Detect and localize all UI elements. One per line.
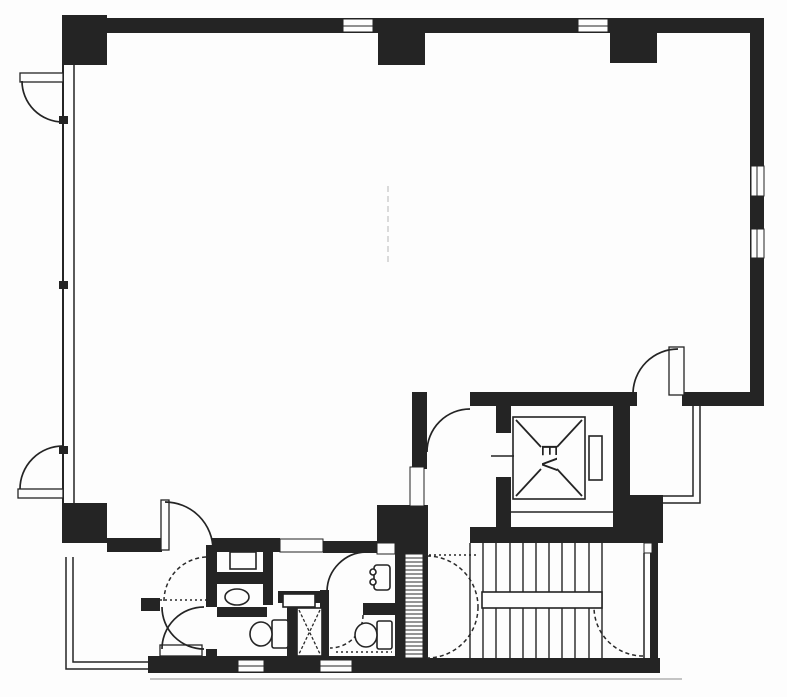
toilet-tank: [377, 621, 392, 649]
balcony-glass-wall: [66, 557, 148, 669]
hand-basin-faucet: [370, 579, 376, 585]
right-window: [751, 229, 764, 258]
duct-space-hatched: [405, 553, 423, 658]
hand-basin-faucet: [370, 569, 376, 575]
hand-basin: [374, 565, 390, 590]
elevator-label: EV: [537, 444, 561, 472]
bottom-vent-window: [320, 660, 352, 672]
wash-basin: [225, 589, 249, 605]
stair-door-frame-notch: [644, 543, 652, 553]
toilet-bowl: [250, 622, 272, 646]
hall-door-left: [427, 409, 470, 452]
outer-walls: [100, 18, 764, 673]
elevator-counterweight: [589, 436, 602, 480]
door-leaf: [669, 347, 684, 395]
partition-glass-panel: [410, 467, 424, 506]
entrance-door-lower-left: [18, 446, 63, 498]
door-leaf: [20, 73, 63, 82]
floor-plan-page: EV: [0, 0, 787, 697]
wc-lobby-double-swing-door: [160, 607, 204, 656]
entrance-door-top-left: [20, 73, 63, 122]
stair-landing-rail: [482, 592, 602, 608]
door-swing-arc: [327, 552, 366, 591]
mullion: [59, 446, 68, 454]
toilet-tank: [272, 620, 288, 648]
column: [62, 503, 107, 543]
toilet-block-entry-door: [160, 500, 213, 601]
door-swing-arc: [427, 409, 470, 452]
left-curtain-wall: [59, 65, 74, 505]
column: [62, 15, 107, 65]
door-swing-arc: [20, 446, 63, 489]
mullion: [59, 281, 68, 289]
column: [378, 33, 425, 65]
right-window: [751, 166, 764, 196]
top-window: [343, 19, 373, 32]
toilet-1: [250, 620, 288, 648]
bottom-vent-window: [238, 660, 264, 672]
door-leaf: [18, 489, 63, 498]
top-window: [578, 19, 608, 32]
bay-window: [663, 406, 700, 503]
door-swing-arc: [22, 81, 63, 122]
door-leaf: [160, 645, 202, 656]
door-leaf: [161, 500, 169, 550]
kitchenette-sink: [230, 552, 256, 569]
windows: [238, 19, 764, 672]
column: [610, 33, 657, 63]
staircase: [470, 543, 602, 658]
powder-room-door: [327, 552, 390, 591]
toilet-2: [355, 621, 392, 649]
pipe-shaft: [297, 608, 322, 656]
mullion: [59, 116, 68, 124]
wall-opening: [377, 543, 395, 554]
counter: [283, 594, 315, 607]
door-swing-arc-dashed: [164, 557, 208, 601]
door-swing-arc: [165, 502, 213, 550]
hall-door-right: [633, 347, 684, 395]
toilet-bowl: [355, 623, 377, 647]
corridor-transom-window: [280, 539, 323, 552]
floor-plan-drawing: EV: [0, 0, 787, 697]
